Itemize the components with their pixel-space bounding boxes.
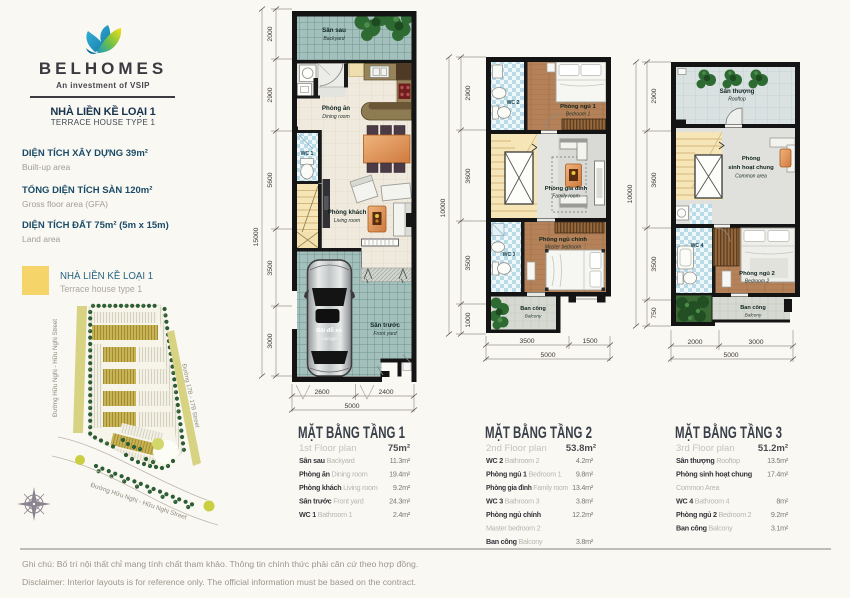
svg-text:TỔNG DIỆN TÍCH SÀN 120m²: TỔNG DIỆN TÍCH SÀN 120m² xyxy=(22,184,152,196)
svg-text:5000: 5000 xyxy=(723,352,738,359)
svg-text:Dining room: Dining room xyxy=(322,114,349,120)
svg-text:Common area: Common area xyxy=(735,174,767,180)
svg-text:3500: 3500 xyxy=(651,256,658,271)
svg-text:Common Area: Common Area xyxy=(676,483,719,492)
svg-text:2.4m²: 2.4m² xyxy=(393,510,411,519)
svg-text:Rooftop: Rooftop xyxy=(728,97,746,103)
svg-text:2400: 2400 xyxy=(378,389,393,396)
svg-text:3000: 3000 xyxy=(267,333,274,348)
svg-text:WC 3: WC 3 xyxy=(503,252,516,258)
svg-text:17.4m²: 17.4m² xyxy=(767,470,789,479)
svg-text:11.3m²: 11.3m² xyxy=(390,456,411,465)
svg-text:3000: 3000 xyxy=(748,339,763,346)
svg-text:12.2m²: 12.2m² xyxy=(572,510,594,519)
svg-text:2900: 2900 xyxy=(651,88,658,103)
svg-text:13.4m²: 13.4m² xyxy=(572,483,594,492)
svg-text:Đường Hữu Nghị - Hữu Nghị Stre: Đường Hữu Nghị - Hữu Nghị Street xyxy=(52,319,59,417)
svg-text:Phòng ăn: Phòng ăn xyxy=(322,105,350,112)
svg-text:Balcony: Balcony xyxy=(525,314,542,319)
svg-text:9.8m²: 9.8m² xyxy=(576,470,594,479)
svg-text:MẶT BẰNG TẦNG 1: MẶT BẰNG TẦNG 1 xyxy=(298,423,405,442)
svg-text:Sân trước Front yard: Sân trước Front yard xyxy=(299,497,364,506)
svg-text:2600: 2600 xyxy=(314,389,329,396)
svg-text:Bãi đỗ xe: Bãi đỗ xe xyxy=(316,327,343,334)
svg-text:Phòng ngủ 2: Phòng ngủ 2 xyxy=(739,271,775,277)
svg-text:5000: 5000 xyxy=(344,403,359,410)
svg-text:BELHOMES: BELHOMES xyxy=(39,59,167,78)
svg-text:Sân sau Backyard: Sân sau Backyard xyxy=(299,456,355,465)
svg-text:sinh hoạt chung: sinh hoạt chung xyxy=(728,165,774,171)
svg-text:Phòng ngủ 1: Phòng ngủ 1 xyxy=(560,104,596,110)
svg-text:Phòng sinh hoạt chung: Phòng sinh hoạt chung xyxy=(676,470,752,479)
svg-text:WC 4 Bathroom 4: WC 4 Bathroom 4 xyxy=(676,497,730,506)
svg-text:WC 1: WC 1 xyxy=(301,151,314,157)
svg-text:Ghi chú: Bố trí nội thất chỉ m: Ghi chú: Bố trí nội thất chỉ mang tính c… xyxy=(22,559,418,569)
svg-text:13.5m²: 13.5m² xyxy=(767,456,789,465)
svg-text:Phòng gia đình Family room: Phòng gia đình Family room xyxy=(486,483,568,492)
svg-text:Bedroom 1: Bedroom 1 xyxy=(566,112,591,118)
svg-text:NHÀ LIỀN KỀ LOẠI 1: NHÀ LIỀN KỀ LOẠI 1 xyxy=(60,271,153,282)
svg-text:TERRACE HOUSE TYPE 1: TERRACE HOUSE TYPE 1 xyxy=(51,118,156,127)
svg-text:3600: 3600 xyxy=(651,172,658,187)
svg-text:10000: 10000 xyxy=(440,198,447,217)
svg-text:WC 1 Bathroom 1: WC 1 Bathroom 1 xyxy=(299,510,353,519)
svg-text:75m²: 75m² xyxy=(388,443,410,454)
svg-text:8m²: 8m² xyxy=(776,497,788,506)
svg-text:Sân thượng Rooftop: Sân thượng Rooftop xyxy=(676,456,740,465)
svg-text:WC 4: WC 4 xyxy=(691,243,704,249)
svg-text:Phòng ngủ 2 Bedroom 2: Phòng ngủ 2 Bedroom 2 xyxy=(676,510,752,519)
svg-text:Phòng ngủ 1 Bedroom 1: Phòng ngủ 1 Bedroom 1 xyxy=(486,470,562,479)
svg-text:4.2m²: 4.2m² xyxy=(576,456,594,465)
svg-text:WC 2 Bathroom 2: WC 2 Bathroom 2 xyxy=(486,456,540,465)
svg-text:9.2m²: 9.2m² xyxy=(771,510,789,519)
svg-text:1000: 1000 xyxy=(465,312,472,327)
svg-text:1st Floor plan: 1st Floor plan xyxy=(299,443,357,454)
svg-text:5600: 5600 xyxy=(267,172,274,187)
svg-text:Master bedroom 2: Master bedroom 2 xyxy=(486,524,541,533)
svg-text:Garage: Garage xyxy=(321,336,337,342)
svg-text:Phòng ngủ chính: Phòng ngủ chính xyxy=(539,237,587,243)
svg-text:MẶT BẰNG TẦNG 2: MẶT BẰNG TẦNG 2 xyxy=(485,423,592,442)
svg-text:Terrace house type 1: Terrace house type 1 xyxy=(60,284,142,294)
svg-text:15000: 15000 xyxy=(253,227,260,246)
svg-text:Sân sau: Sân sau xyxy=(322,27,346,34)
svg-text:Bedroom 2: Bedroom 2 xyxy=(745,279,770,285)
svg-text:53.8m²: 53.8m² xyxy=(566,443,596,454)
svg-text:750: 750 xyxy=(651,307,658,319)
svg-text:3.8m²: 3.8m² xyxy=(576,497,594,506)
svg-text:9.2m²: 9.2m² xyxy=(393,483,411,492)
svg-text:Sân thượng: Sân thượng xyxy=(720,88,755,95)
svg-text:Gross floor area (GFA): Gross floor area (GFA) xyxy=(22,199,108,209)
svg-text:3600: 3600 xyxy=(465,168,472,183)
svg-text:Phòng gia đình: Phòng gia đình xyxy=(545,186,588,192)
svg-text:10000: 10000 xyxy=(627,184,634,203)
svg-text:2nd Floor plan: 2nd Floor plan xyxy=(486,443,547,454)
svg-text:Disclaimer: Interior layouts i: Disclaimer: Interior layouts is for refe… xyxy=(22,577,416,587)
svg-text:WC 3 Bathroom 3: WC 3 Bathroom 3 xyxy=(486,497,540,506)
svg-text:Phòng khách Living room: Phòng khách Living room xyxy=(299,483,378,492)
svg-text:3500: 3500 xyxy=(465,255,472,270)
svg-text:Balcony: Balcony xyxy=(745,313,762,318)
svg-text:Backyard: Backyard xyxy=(323,36,344,42)
svg-text:Phòng ngủ chính: Phòng ngủ chính xyxy=(486,510,541,519)
svg-text:51.2m²: 51.2m² xyxy=(758,443,788,454)
svg-text:1500: 1500 xyxy=(582,338,597,345)
svg-text:DIỆN TÍCH XÂY DỰNG 39m²: DIỆN TÍCH XÂY DỰNG 39m² xyxy=(22,147,148,159)
svg-text:Family room: Family room xyxy=(552,194,580,200)
svg-text:3500: 3500 xyxy=(267,260,274,275)
svg-text:2000: 2000 xyxy=(687,339,702,346)
svg-text:An investment of VSIP: An investment of VSIP xyxy=(56,81,150,90)
svg-text:WC 2: WC 2 xyxy=(507,100,520,106)
svg-text:Front yard: Front yard xyxy=(373,331,396,337)
svg-text:19.4m²: 19.4m² xyxy=(389,470,411,479)
svg-text:Living room: Living room xyxy=(334,218,360,224)
svg-text:DIỆN TÍCH ĐẤT 75m² (5m x 15m): DIỆN TÍCH ĐẤT 75m² (5m x 15m) xyxy=(22,219,169,231)
svg-text:5000: 5000 xyxy=(540,352,555,359)
svg-text:MẶT BẰNG TẦNG 3: MẶT BẰNG TẦNG 3 xyxy=(675,423,782,442)
svg-text:Sân trước: Sân trước xyxy=(370,322,400,329)
svg-text:24.3m²: 24.3m² xyxy=(389,497,411,506)
svg-text:Ban công: Ban công xyxy=(740,305,766,311)
svg-text:3.1m²: 3.1m² xyxy=(771,524,789,533)
svg-text:Phòng: Phòng xyxy=(742,156,761,162)
svg-text:NHÀ LIỀN KỀ LOẠI 1: NHÀ LIỀN KỀ LOẠI 1 xyxy=(50,105,155,118)
svg-text:Land area: Land area xyxy=(22,234,61,244)
svg-text:Ban công Balcony: Ban công Balcony xyxy=(676,524,733,533)
svg-text:Phòng khách: Phòng khách xyxy=(328,209,367,216)
svg-text:3500: 3500 xyxy=(519,338,534,345)
svg-text:2900: 2900 xyxy=(267,87,274,102)
svg-text:Ban công Balcony: Ban công Balcony xyxy=(486,537,543,546)
svg-text:3.8m²: 3.8m² xyxy=(576,537,594,546)
svg-text:3rd Floor plan: 3rd Floor plan xyxy=(676,443,735,454)
svg-text:Ban công: Ban công xyxy=(520,306,546,312)
svg-text:Built-up area: Built-up area xyxy=(22,162,70,172)
svg-text:2000: 2000 xyxy=(267,26,274,41)
svg-text:2900: 2900 xyxy=(465,85,472,100)
svg-text:Phòng ăn Dining room: Phòng ăn Dining room xyxy=(299,470,368,479)
